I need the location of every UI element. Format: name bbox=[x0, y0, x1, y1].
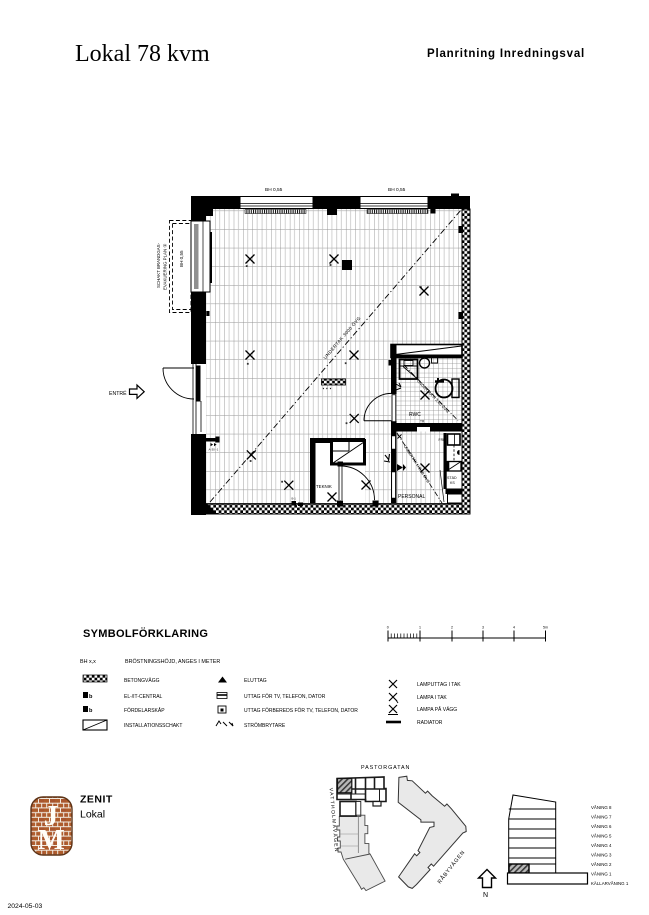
svg-text:▼ ▼ ▼: ▼ ▼ ▼ bbox=[322, 387, 332, 391]
svg-text:VÅNING 1: VÅNING 1 bbox=[591, 872, 612, 877]
svg-text:RADIATOR: RADIATOR bbox=[417, 720, 443, 726]
svg-text:VÅNING 7: VÅNING 7 bbox=[591, 815, 612, 820]
svg-text:FRD: FRD bbox=[439, 438, 447, 442]
svg-text:b: b bbox=[89, 708, 93, 714]
svg-text:A-30 -1: A-30 -1 bbox=[209, 448, 219, 452]
svg-text:BH 0,55: BH 0,55 bbox=[179, 250, 184, 267]
svg-text:UTTAG FÖR TV, TELEFON, DATOR: UTTAG FÖR TV, TELEFON, DATOR bbox=[244, 693, 326, 700]
svg-text:STRÖMBRYTARE: STRÖMBRYTARE bbox=[244, 722, 286, 729]
svg-text:KÄLLARVÅNING 1: KÄLLARVÅNING 1 bbox=[591, 881, 629, 886]
svg-text:VÅNING 8: VÅNING 8 bbox=[591, 805, 612, 810]
svg-text:1: 1 bbox=[419, 626, 421, 630]
svg-text:SYMBOLFÖRKLARING: SYMBOLFÖRKLARING bbox=[83, 627, 208, 640]
svg-text:2: 2 bbox=[451, 626, 453, 630]
svg-text:SCHAKT BRANDGAS-: SCHAKT BRANDGAS- bbox=[156, 242, 161, 288]
svg-text:VÅNING 2: VÅNING 2 bbox=[591, 862, 612, 867]
svg-text:b: b bbox=[89, 694, 93, 700]
svg-text:LAMPUTTAG I TAK: LAMPUTTAG I TAK bbox=[417, 682, 461, 688]
svg-text:5m: 5m bbox=[543, 626, 548, 630]
svg-text:PERSONAL: PERSONAL bbox=[398, 494, 425, 500]
svg-text:ELUTTAG: ELUTTAG bbox=[244, 678, 267, 684]
svg-text:EL-/IT-CENTRAL: EL-/IT-CENTRAL bbox=[124, 694, 163, 700]
svg-text:VÅNING 4: VÅNING 4 bbox=[591, 843, 612, 848]
svg-text:VÅNING 6: VÅNING 6 bbox=[591, 824, 612, 829]
svg-text:RWC: RWC bbox=[409, 412, 421, 418]
svg-text:B-1: B-1 bbox=[292, 497, 297, 501]
svg-text:KS: KS bbox=[450, 481, 455, 485]
svg-text:4: 4 bbox=[513, 626, 515, 630]
svg-text:EVAKUERING PLAN ①: EVAKUERING PLAN ① bbox=[163, 244, 168, 290]
svg-text:BH x,x: BH x,x bbox=[80, 659, 96, 665]
svg-text:LAMPA PÅ VÄGG: LAMPA PÅ VÄGG bbox=[417, 706, 457, 713]
svg-text:BRÖSTNINGSHÖJD, ANGES I METER: BRÖSTNINGSHÖJD, ANGES I METER bbox=[125, 658, 220, 665]
svg-text:BH 0,55: BH 0,55 bbox=[265, 187, 283, 193]
svg-text:UTTAG FÖRBEREDS FÖR TV, TELEFO: UTTAG FÖRBEREDS FÖR TV, TELEFON, DATOR bbox=[244, 707, 358, 714]
svg-text:Lokal 78 kvm: Lokal 78 kvm bbox=[75, 41, 210, 67]
svg-text:INSTALLATIONSSCHAKT: INSTALLATIONSSCHAKT bbox=[124, 723, 182, 729]
svg-text:VÅNING 3: VÅNING 3 bbox=[591, 853, 612, 858]
svg-text:Planritning Inredningsval: Planritning Inredningsval bbox=[427, 48, 585, 60]
svg-text:TR: TR bbox=[420, 420, 425, 424]
svg-text:FÖRDELARSKÅP: FÖRDELARSKÅP bbox=[124, 707, 165, 714]
svg-text:TEKNIK: TEKNIK bbox=[316, 484, 332, 489]
svg-text:BETONGVÄGG: BETONGVÄGG bbox=[124, 677, 160, 684]
svg-text:PASTORGATAN: PASTORGATAN bbox=[361, 765, 410, 771]
svg-text:STÄD: STÄD bbox=[447, 476, 457, 480]
svg-text:VÅNING 5: VÅNING 5 bbox=[591, 834, 612, 839]
svg-text:M: M bbox=[37, 824, 64, 856]
svg-text:ZENIT: ZENIT bbox=[80, 794, 113, 806]
svg-text:Lokal: Lokal bbox=[80, 809, 105, 821]
svg-text:0: 0 bbox=[387, 626, 389, 630]
svg-text:3: 3 bbox=[482, 626, 484, 630]
svg-text:2024-05-03: 2024-05-03 bbox=[8, 903, 43, 910]
svg-text:BH 0,55: BH 0,55 bbox=[388, 187, 406, 193]
svg-text:ENTRÉ: ENTRÉ bbox=[109, 390, 127, 397]
svg-text:N: N bbox=[483, 892, 488, 899]
svg-text:LAMPA I TAK: LAMPA I TAK bbox=[417, 695, 447, 701]
